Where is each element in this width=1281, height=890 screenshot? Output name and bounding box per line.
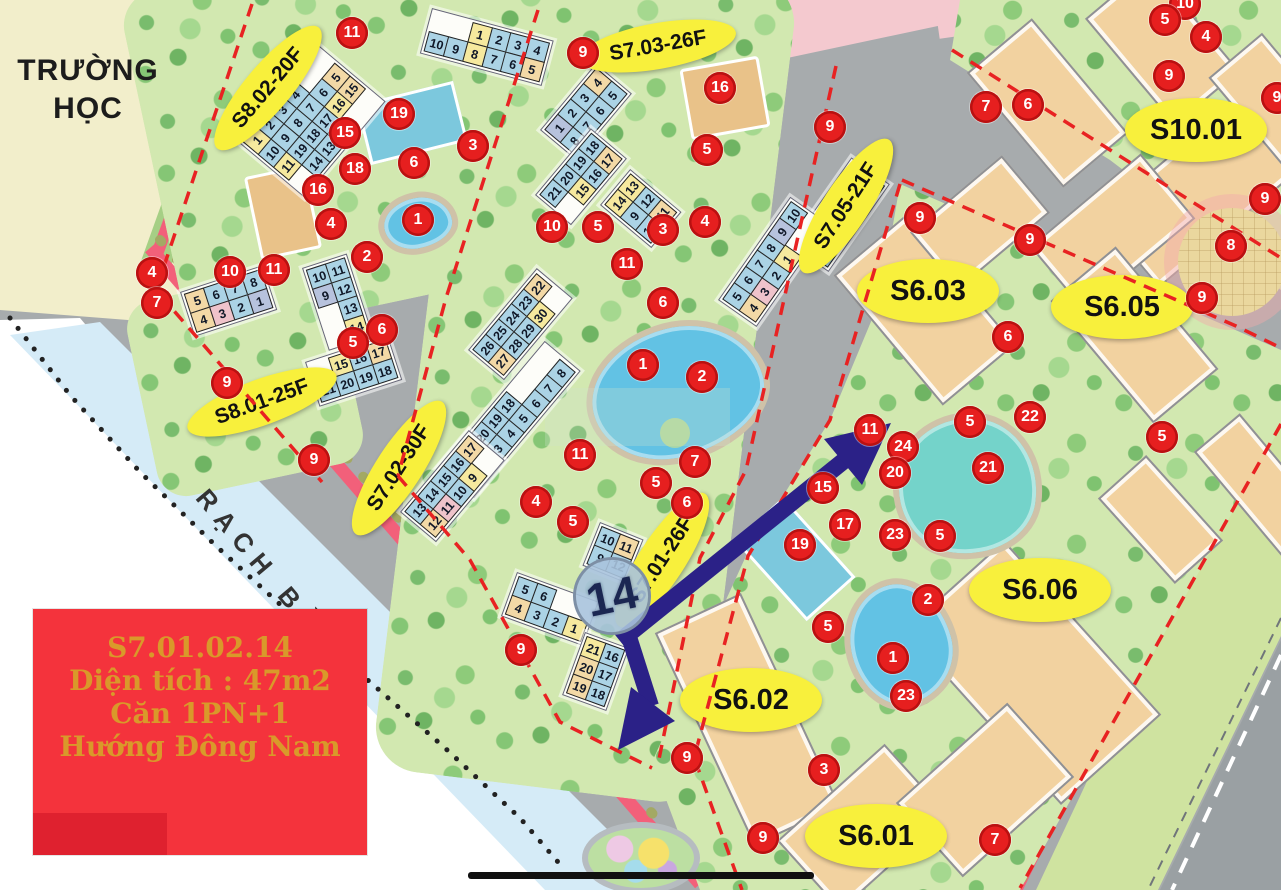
region-label: S6.05: [1051, 275, 1193, 339]
amenity-marker: 5: [1146, 421, 1178, 453]
amenity-marker: 6: [992, 321, 1024, 353]
amenity-marker: 2: [912, 584, 944, 616]
amenity-marker: 2: [351, 241, 383, 273]
region-label: S6.01: [805, 804, 947, 868]
amenity-marker: 4: [1190, 21, 1222, 53]
amenity-marker: 5: [691, 134, 723, 166]
region-label: S6.06: [969, 558, 1111, 622]
amenity-marker: 5: [954, 406, 986, 438]
amenity-marker: 9: [1249, 183, 1281, 215]
amenity-marker: 11: [854, 414, 886, 446]
amenity-marker: 3: [457, 130, 489, 162]
school-label: TRƯỜNG HỌC: [8, 52, 168, 127]
amenity-marker: 1: [627, 349, 659, 381]
region-label: S6.03: [857, 259, 999, 323]
amenity-marker: 9: [505, 634, 537, 666]
amenity-marker: 7: [970, 91, 1002, 123]
amenity-marker: 6: [366, 314, 398, 346]
amenity-marker: 19: [383, 98, 415, 130]
amenity-marker: 1: [877, 642, 909, 674]
amenity-marker: 9: [211, 367, 243, 399]
amenity-marker: 17: [829, 509, 861, 541]
amenity-marker: 9: [747, 822, 779, 854]
region-label: S10.01: [1125, 98, 1267, 162]
amenity-marker: 15: [329, 117, 361, 149]
amenity-marker: 9: [567, 37, 599, 69]
amenity-marker: 16: [302, 174, 334, 206]
amenity-marker: 5: [812, 611, 844, 643]
amenity-marker: 5: [557, 506, 589, 538]
amenity-marker: 11: [611, 248, 643, 280]
amenity-marker: 5: [924, 520, 956, 552]
amenity-marker: 16: [704, 72, 736, 104]
amenity-marker: 7: [679, 446, 711, 478]
amenity-marker: 6: [647, 287, 679, 319]
info-unit-type: Căn 1PN+1: [33, 697, 367, 730]
amenity-marker: 4: [689, 206, 721, 238]
listing-info-box: S7.01.02.14 Diện tích : 47m2 Căn 1PN+1 H…: [33, 609, 367, 855]
amenity-marker: 5: [640, 467, 672, 499]
amenity-marker: 1: [402, 204, 434, 236]
amenity-marker: 10: [536, 211, 568, 243]
amenity-marker: 23: [879, 519, 911, 551]
amenity-marker: 6: [671, 487, 703, 519]
amenity-marker: 5: [1149, 4, 1181, 36]
amenity-marker: 5: [337, 327, 369, 359]
amenity-marker: 9: [1014, 224, 1046, 256]
amenity-marker: 4: [520, 486, 552, 518]
amenity-marker: 7: [141, 287, 173, 319]
amenity-marker: 4: [136, 257, 168, 289]
amenity-marker: 6: [398, 147, 430, 179]
amenity-marker: 11: [258, 254, 290, 286]
region-label: S6.02: [680, 668, 822, 732]
corner-road: [1160, 640, 1281, 890]
amenity-marker: 10: [214, 256, 246, 288]
info-box-smudge: [33, 813, 167, 855]
amenity-marker: 2: [686, 361, 718, 393]
corner-road-dashes: [1172, 655, 1281, 890]
amenity-marker: 11: [564, 439, 596, 471]
school-label-line1: TRƯỜNG: [8, 52, 168, 90]
amenity-marker: 9: [671, 742, 703, 774]
amenity-marker: 9: [904, 202, 936, 234]
amenity-marker: 20: [879, 457, 911, 489]
info-direction: Hướng Đông Nam: [33, 730, 367, 763]
amenity-marker: 23: [890, 680, 922, 712]
amenity-marker: 9: [1153, 60, 1185, 92]
watermark: [545, 388, 730, 446]
school-label-line2: HỌC: [8, 90, 168, 128]
amenity-marker: 21: [972, 452, 1004, 484]
amenity-marker: 19: [784, 529, 816, 561]
amenity-marker: 11: [336, 17, 368, 49]
playground: [582, 822, 700, 890]
amenity-marker: 9: [1186, 282, 1218, 314]
unit-cell: 5: [519, 57, 545, 83]
amenity-marker: 9: [814, 111, 846, 143]
site-plan-map: 1234109876512341098765111918171615141312…: [0, 0, 1281, 890]
watermark-ball: [660, 418, 690, 448]
amenity-marker: 3: [808, 754, 840, 786]
amenity-marker: 18: [339, 153, 371, 185]
amenity-marker: 3: [647, 214, 679, 246]
amenity-marker: 7: [979, 824, 1011, 856]
info-area: Diện tích : 47m2: [33, 664, 367, 697]
amenity-marker: 5: [582, 211, 614, 243]
amenity-marker: 6: [1012, 89, 1044, 121]
amenity-marker: 15: [807, 472, 839, 504]
bottom-black-bar: [468, 872, 814, 879]
amenity-marker: 4: [315, 208, 347, 240]
info-unit-code: S7.01.02.14: [33, 631, 367, 664]
amenity-marker: 8: [1215, 230, 1247, 262]
corner-road-edge: [1148, 618, 1281, 890]
amenity-marker: 22: [1014, 401, 1046, 433]
amenity-marker: 9: [298, 444, 330, 476]
